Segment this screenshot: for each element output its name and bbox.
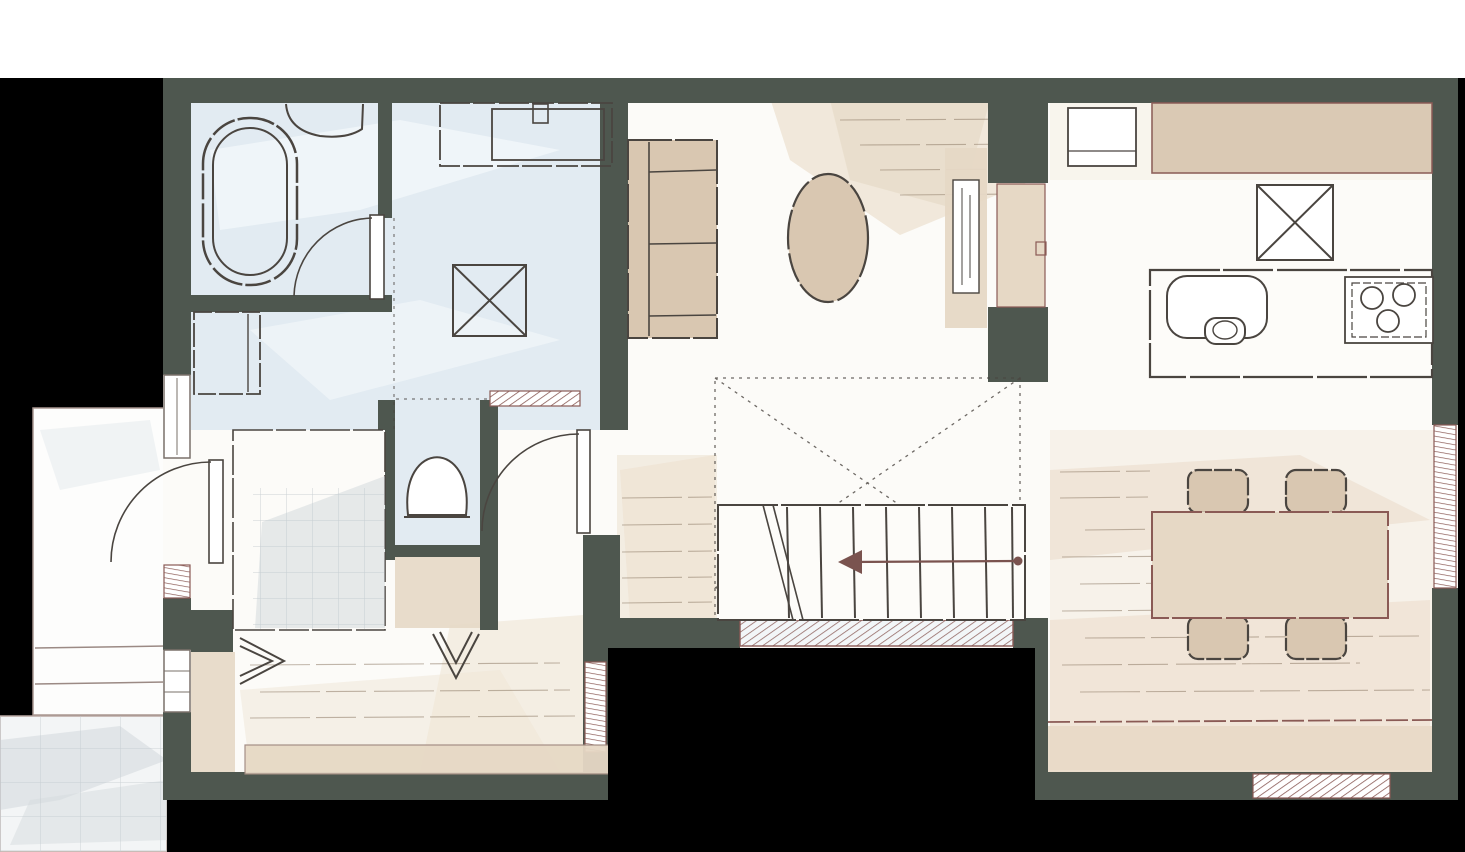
veranda-strip [1048, 726, 1432, 772]
wall-living-kitchen-mid [988, 307, 1048, 382]
wall-living-kitchen-upper [988, 78, 1048, 183]
wall-left-mid [163, 598, 191, 650]
wall-bottom-left [163, 772, 608, 800]
window-left-upper [164, 375, 190, 458]
wall-genkan-block [191, 610, 233, 652]
counter-cupboard [1152, 103, 1432, 173]
floor-plan-canvas [0, 0, 1465, 852]
hatched-window-right-wall [1434, 425, 1456, 588]
approach-tiled-path [0, 716, 167, 852]
hatched-sidelight-left [164, 565, 190, 598]
wall-top [163, 78, 1458, 103]
wall-niche [997, 184, 1046, 307]
hatched-slider-toilet [490, 391, 580, 406]
wall-stair-south-left [583, 618, 740, 648]
wall-left-upper [163, 78, 191, 375]
hatched-window-bottom-wall [1253, 774, 1390, 798]
dining-table [1152, 512, 1388, 618]
wall-toilet-bottom [378, 545, 498, 557]
right-margin [1458, 78, 1465, 852]
appliance-box [1068, 108, 1136, 166]
porch [33, 408, 167, 715]
wall-right-lower [1432, 588, 1458, 800]
tv-board [945, 148, 987, 328]
floor-plan-screenshot [0, 0, 1465, 852]
stair-south-window [740, 620, 1013, 646]
wall-right-upper [1432, 78, 1458, 425]
wall-bath-bottom [163, 295, 392, 312]
hatched-slider-hall [585, 662, 606, 752]
chair-bottom-right [1286, 616, 1346, 659]
wall-bottom-right [1035, 772, 1458, 800]
genkan-floor [191, 652, 235, 772]
window-left-lower [164, 650, 190, 712]
island-counter [1150, 270, 1433, 377]
step-board [245, 745, 625, 774]
wall-corridor-left [583, 535, 620, 625]
chair-bottom-left [1188, 616, 1248, 659]
staircase [718, 505, 1025, 620]
wall-bath-washroom [378, 95, 392, 218]
sink-faucet [1205, 318, 1245, 344]
tv [953, 180, 979, 293]
chair-top-right [1286, 470, 1346, 513]
bottom-margin [167, 800, 1465, 852]
cooktop-3-burner [1345, 277, 1433, 343]
refrigerator-space [1257, 185, 1333, 260]
sofa [628, 140, 717, 338]
white-top-margin [0, 0, 1465, 78]
chair-top-left [1188, 470, 1248, 513]
oval-coffee-table [788, 174, 868, 302]
wall-stair-south-right [1013, 618, 1048, 648]
